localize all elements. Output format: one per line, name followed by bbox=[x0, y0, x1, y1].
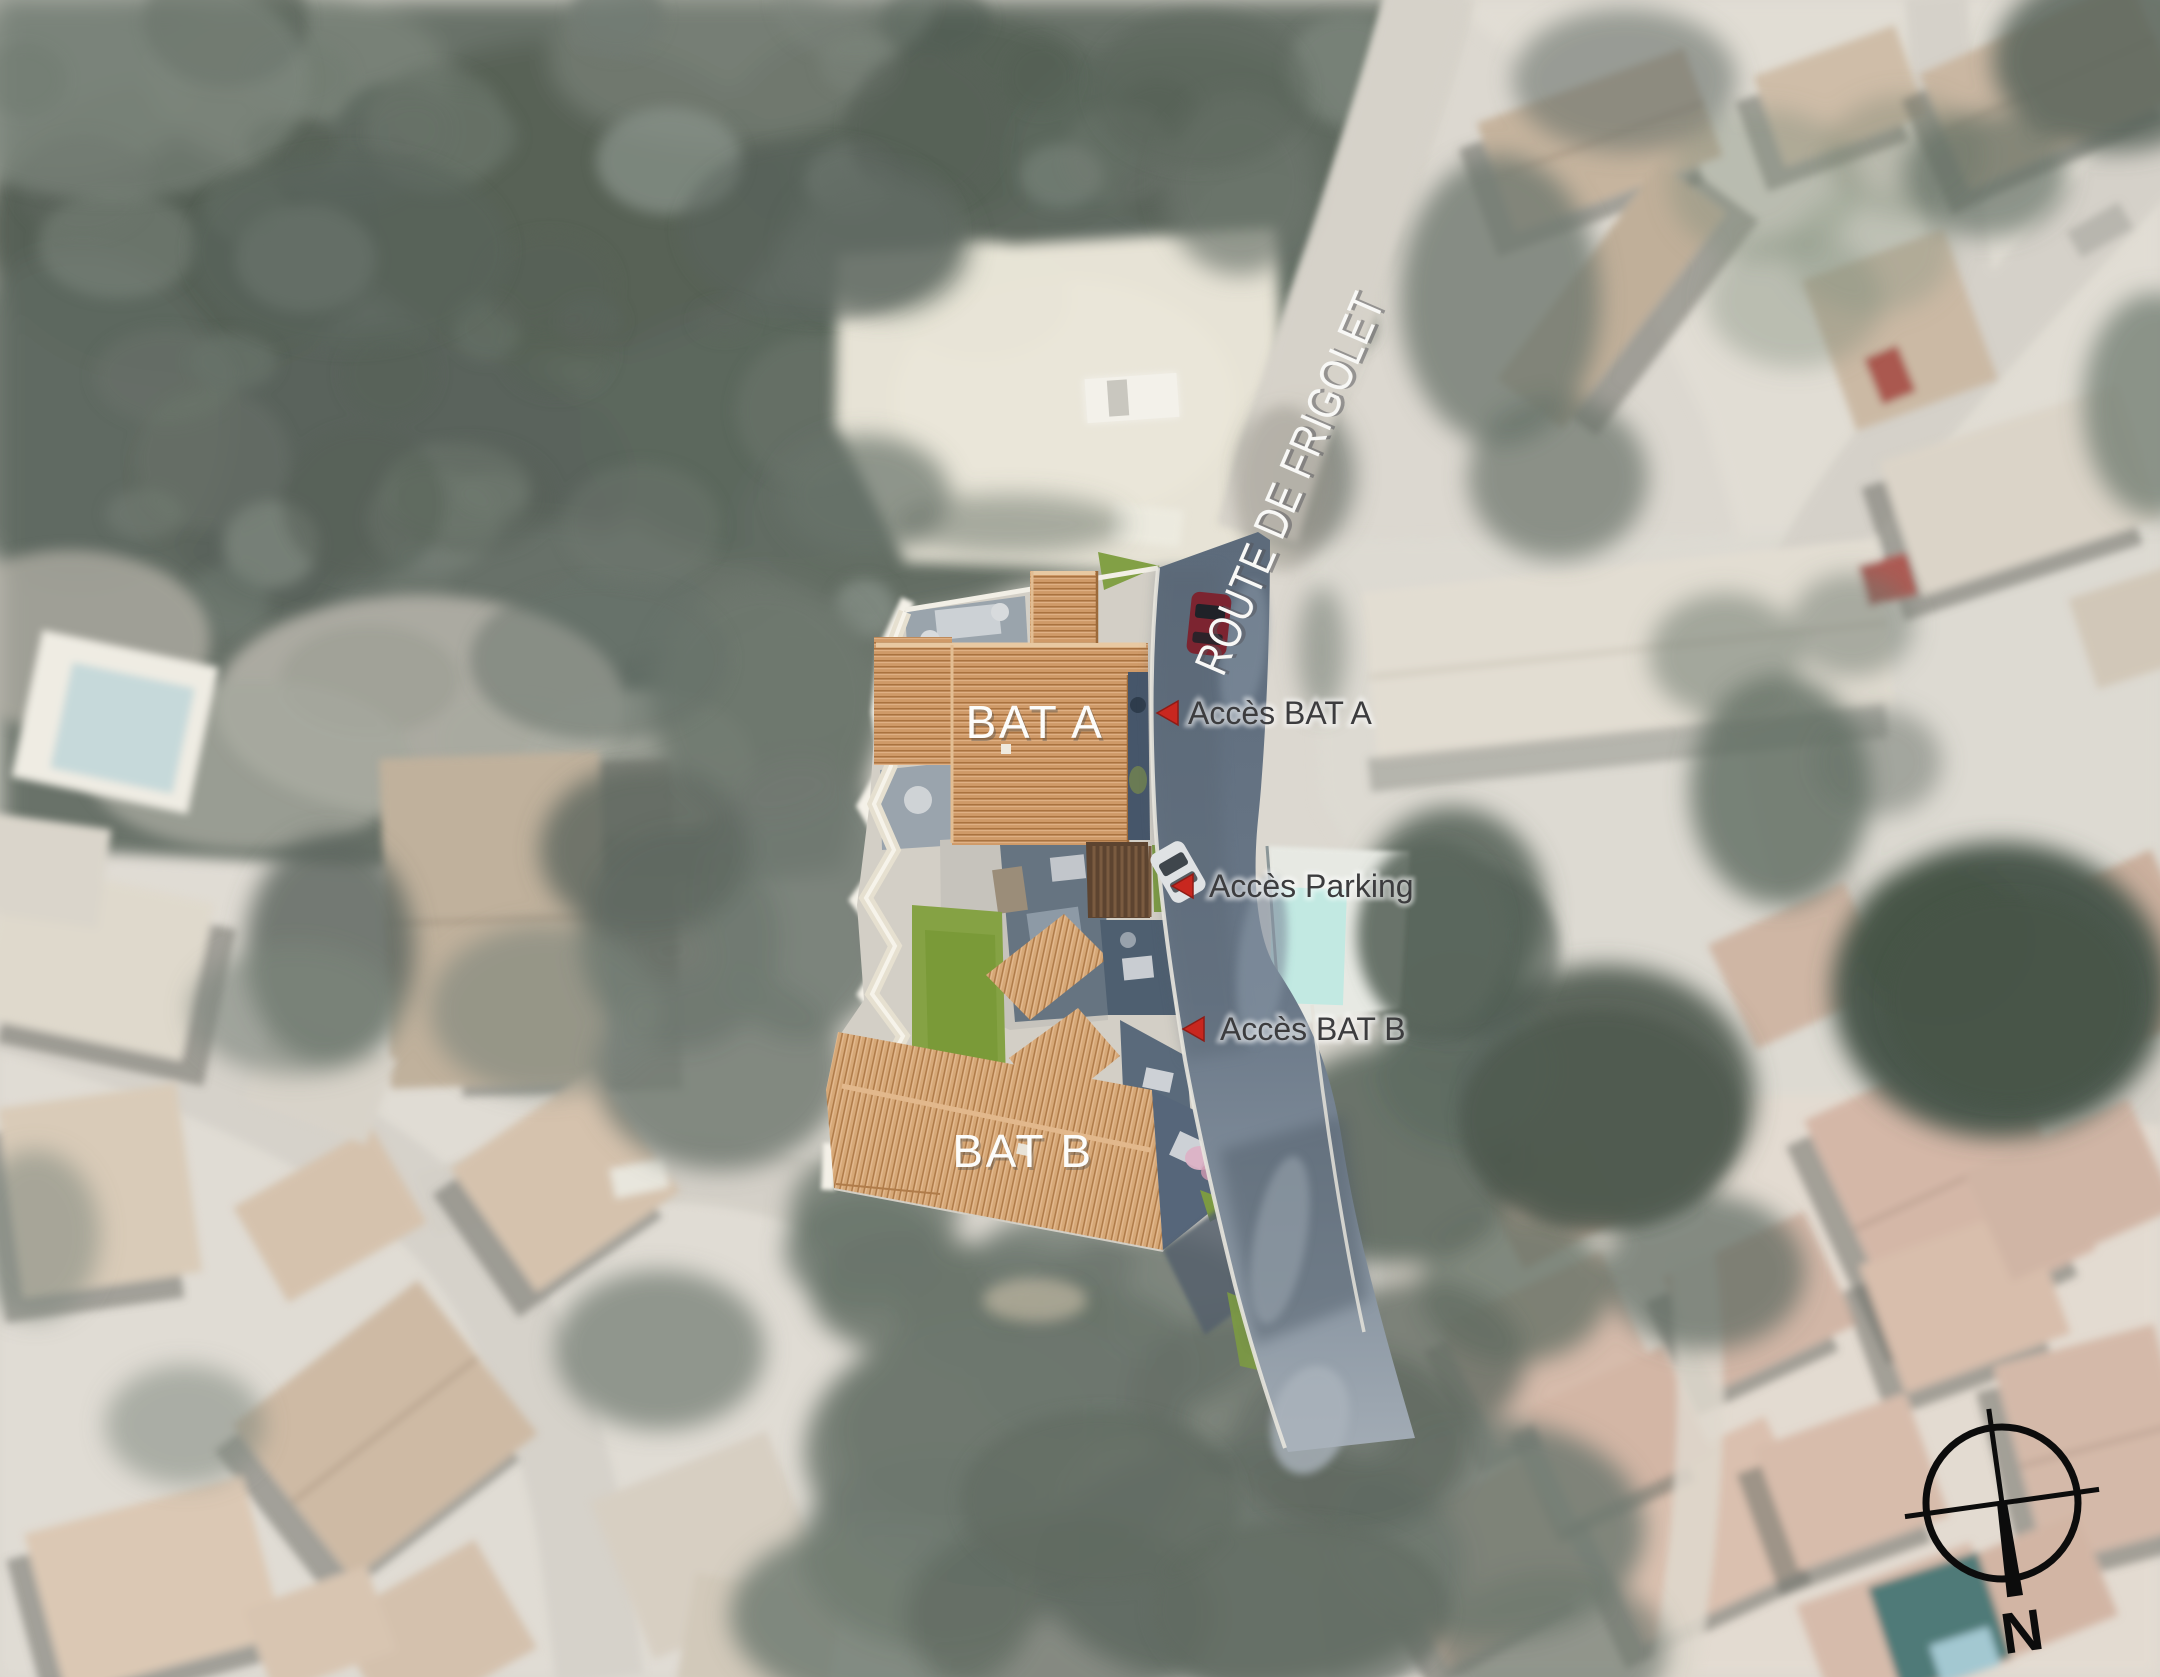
svg-text:Accès Parking: Accès Parking bbox=[1209, 868, 1414, 904]
svg-text:Accès BAT A: Accès BAT A bbox=[1188, 695, 1372, 731]
svg-text:Accès BAT B: Accès BAT B bbox=[1220, 1011, 1406, 1047]
svg-text:N: N bbox=[1997, 1597, 2048, 1667]
svg-text:BAT A: BAT A bbox=[966, 696, 1105, 748]
svg-text:BAT B: BAT B bbox=[952, 1125, 1093, 1177]
